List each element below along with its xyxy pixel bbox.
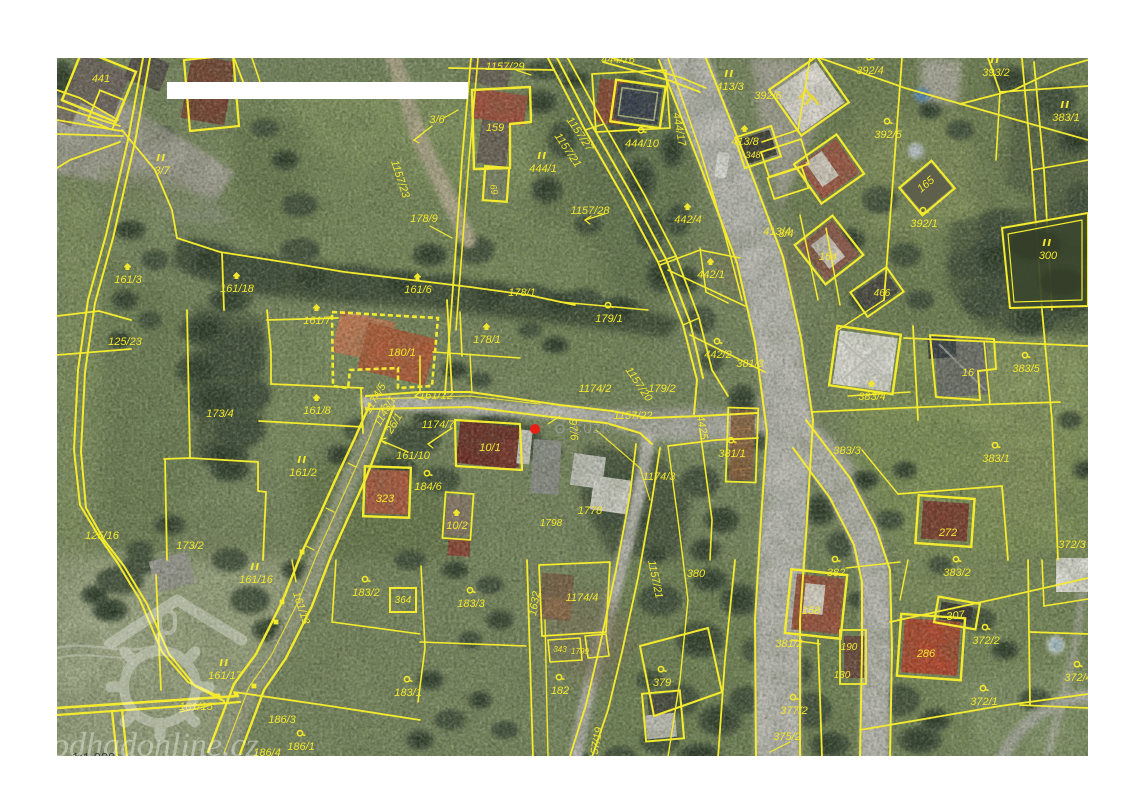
svg-text:190: 190 <box>841 642 858 653</box>
svg-text:179/1: 179/1 <box>595 313 623 325</box>
svg-text:286: 286 <box>916 648 936 660</box>
svg-text:1157/29: 1157/29 <box>486 61 525 73</box>
svg-text:1174/4: 1174/4 <box>566 592 599 604</box>
svg-text:381/2: 381/2 <box>775 638 803 650</box>
svg-text:186/1: 186/1 <box>287 741 315 753</box>
svg-text:393/2: 393/2 <box>982 67 1010 79</box>
svg-text:10/2: 10/2 <box>446 520 467 532</box>
svg-text:130: 130 <box>834 670 851 681</box>
svg-text:444/10: 444/10 <box>625 138 660 150</box>
svg-text:161/6: 161/6 <box>404 284 432 296</box>
svg-text:161/12: 161/12 <box>419 390 453 402</box>
svg-text:442/4: 442/4 <box>674 214 702 226</box>
svg-text:377/2: 377/2 <box>780 705 808 717</box>
svg-text:300: 300 <box>1039 250 1058 262</box>
svg-text:383/1: 383/1 <box>1052 112 1080 124</box>
svg-text:1157/28: 1157/28 <box>571 205 611 217</box>
svg-text:381/3: 381/3 <box>736 358 764 370</box>
svg-text:1778: 1778 <box>578 505 603 517</box>
svg-text:364: 364 <box>395 595 412 606</box>
svg-text:161/2: 161/2 <box>289 467 317 479</box>
svg-text:392/1: 392/1 <box>910 218 938 230</box>
svg-text:161/17: 161/17 <box>208 670 243 682</box>
svg-text:183/1: 183/1 <box>394 687 422 699</box>
svg-text:383/5: 383/5 <box>1012 363 1040 375</box>
svg-text:392/5: 392/5 <box>874 129 902 141</box>
svg-text:441: 441 <box>92 73 110 85</box>
svg-text:1174/3: 1174/3 <box>643 471 677 483</box>
svg-text:413/3: 413/3 <box>716 81 744 93</box>
svg-text:69: 69 <box>488 184 500 196</box>
svg-text:372/3: 372/3 <box>1058 539 1086 551</box>
svg-text:379: 379 <box>653 677 671 689</box>
svg-text:1799: 1799 <box>571 647 589 656</box>
svg-text:383/2: 383/2 <box>943 567 971 579</box>
svg-text:382: 382 <box>827 567 845 579</box>
svg-text:375/2: 375/2 <box>773 731 801 743</box>
svg-text:413/8: 413/8 <box>731 136 759 148</box>
svg-text:ĊÚZK: ĊÚZK <box>573 421 611 436</box>
svg-text:413/4: 413/4 <box>763 226 791 238</box>
svg-text:1798: 1798 <box>540 518 563 529</box>
svg-text:183/2: 183/2 <box>352 587 380 599</box>
svg-text:178/1: 178/1 <box>508 287 536 299</box>
svg-text:173/4: 173/4 <box>206 408 234 420</box>
svg-text:178/1: 178/1 <box>473 334 501 346</box>
svg-text:383/3: 383/3 <box>833 445 861 457</box>
svg-text:343: 343 <box>553 645 567 654</box>
svg-text:466: 466 <box>874 288 891 299</box>
svg-text:323: 323 <box>376 493 395 505</box>
svg-text:183/3: 183/3 <box>457 598 485 610</box>
svg-text:380: 380 <box>687 568 706 580</box>
svg-text:184/6: 184/6 <box>414 481 442 493</box>
svg-text:161/3: 161/3 <box>114 274 142 286</box>
svg-text:125/16: 125/16 <box>85 530 120 542</box>
svg-text:1174/7: 1174/7 <box>422 419 456 431</box>
svg-text:186/3: 186/3 <box>268 714 296 726</box>
svg-text:392/4: 392/4 <box>856 65 884 77</box>
svg-text:159: 159 <box>486 122 504 134</box>
svg-text:180/1: 180/1 <box>388 347 416 359</box>
svg-text:161/10: 161/10 <box>396 450 431 462</box>
svg-text:10/1: 10/1 <box>479 442 500 454</box>
svg-text:164: 164 <box>819 251 837 263</box>
svg-text:348: 348 <box>745 150 760 160</box>
svg-text:381/1: 381/1 <box>718 448 746 460</box>
svg-text:372/2: 372/2 <box>972 635 1000 647</box>
svg-text:372/1: 372/1 <box>970 696 998 708</box>
svg-text:1174/2: 1174/2 <box>579 383 612 395</box>
svg-text:161/8: 161/8 <box>303 405 331 417</box>
svg-text:178/9: 178/9 <box>410 213 438 225</box>
svg-text:125/23: 125/23 <box>108 336 143 348</box>
svg-text:173/2: 173/2 <box>176 540 204 552</box>
svg-text:442/2: 442/2 <box>704 349 732 361</box>
svg-text:161/18: 161/18 <box>220 283 255 295</box>
svg-text:372/4: 372/4 <box>1064 672 1092 684</box>
svg-text:442/1: 442/1 <box>697 269 725 281</box>
svg-text:158: 158 <box>802 605 821 617</box>
svg-text:392/6: 392/6 <box>754 90 782 102</box>
svg-text:383/1: 383/1 <box>982 453 1010 465</box>
svg-text:16: 16 <box>962 367 975 379</box>
svg-text:182: 182 <box>551 685 569 697</box>
svg-text:161/16: 161/16 <box>239 574 274 586</box>
svg-text:161/7: 161/7 <box>303 315 331 327</box>
svg-text:3/6: 3/6 <box>429 114 445 126</box>
svg-text:1157/22: 1157/22 <box>614 410 653 422</box>
svg-text:444/1: 444/1 <box>529 163 557 175</box>
svg-text:383/4: 383/4 <box>858 391 886 403</box>
svg-text:3/7: 3/7 <box>154 165 170 177</box>
svg-text:272: 272 <box>938 527 957 539</box>
svg-text:179/2: 179/2 <box>648 383 676 395</box>
